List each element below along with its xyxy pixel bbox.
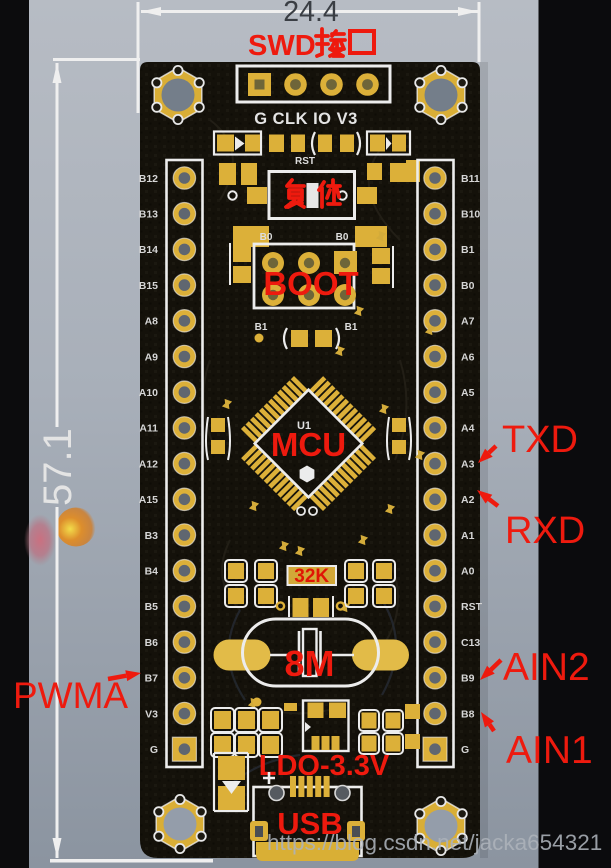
svg-text:B9: B9 bbox=[461, 673, 475, 685]
svg-text:A15: A15 bbox=[139, 494, 158, 506]
svg-text:A11: A11 bbox=[139, 423, 158, 435]
svg-text:57.1: 57.1 bbox=[36, 428, 80, 506]
svg-text:B1: B1 bbox=[461, 244, 475, 256]
svg-text:B14: B14 bbox=[139, 244, 158, 256]
svg-text:MCU: MCU bbox=[271, 426, 346, 463]
svg-text:RST: RST bbox=[461, 601, 483, 613]
svg-text:https://blog.csdn.net/jacka654: https://blog.csdn.net/jacka654321 bbox=[267, 830, 602, 855]
svg-text:A2: A2 bbox=[461, 494, 475, 506]
svg-text:32K: 32K bbox=[294, 566, 329, 587]
svg-text:V3: V3 bbox=[145, 708, 158, 720]
svg-text:A6: A6 bbox=[461, 351, 475, 363]
svg-text:BOOT: BOOT bbox=[263, 265, 358, 302]
svg-text:B1: B1 bbox=[345, 322, 358, 333]
svg-text:A3: A3 bbox=[461, 458, 475, 470]
svg-text:A0: A0 bbox=[461, 566, 475, 578]
svg-text:8M: 8M bbox=[284, 643, 334, 684]
svg-text:B6: B6 bbox=[145, 637, 159, 649]
svg-text:G CLK IO V3: G CLK IO V3 bbox=[254, 110, 358, 128]
svg-text:B7: B7 bbox=[145, 673, 159, 685]
svg-text:PWMA: PWMA bbox=[13, 675, 128, 716]
svg-text:A8: A8 bbox=[145, 316, 159, 328]
svg-text:A12: A12 bbox=[139, 458, 158, 470]
svg-text:TXD: TXD bbox=[502, 419, 578, 461]
svg-text:B3: B3 bbox=[145, 530, 159, 542]
svg-text:AIN1: AIN1 bbox=[506, 729, 593, 772]
svg-text:B0: B0 bbox=[336, 232, 349, 243]
svg-text:B0: B0 bbox=[461, 280, 475, 292]
svg-text:B11: B11 bbox=[461, 173, 480, 185]
svg-text:C13: C13 bbox=[461, 637, 480, 649]
svg-text:B15: B15 bbox=[139, 280, 158, 292]
svg-text:RXD: RXD bbox=[505, 510, 585, 552]
svg-text:RST: RST bbox=[295, 156, 315, 167]
svg-text:A1: A1 bbox=[461, 530, 475, 542]
svg-text:A4: A4 bbox=[461, 423, 475, 435]
svg-text:A5: A5 bbox=[461, 387, 475, 399]
svg-text:G: G bbox=[461, 744, 469, 756]
svg-text:B10: B10 bbox=[461, 209, 480, 221]
svg-text:G: G bbox=[150, 744, 158, 756]
svg-text:B4: B4 bbox=[145, 566, 159, 578]
svg-text:SWD: SWD bbox=[248, 30, 316, 62]
svg-text:A9: A9 bbox=[145, 351, 159, 363]
svg-text:AIN2: AIN2 bbox=[503, 646, 590, 689]
svg-text:A10: A10 bbox=[139, 387, 158, 399]
svg-text:B1: B1 bbox=[255, 322, 268, 333]
svg-text:24.4: 24.4 bbox=[283, 0, 339, 28]
svg-text:B13: B13 bbox=[139, 209, 158, 221]
svg-text:B0: B0 bbox=[260, 232, 273, 243]
svg-text:B8: B8 bbox=[461, 708, 475, 720]
svg-text:B5: B5 bbox=[145, 601, 159, 613]
svg-text:B12: B12 bbox=[139, 173, 158, 185]
svg-text:A7: A7 bbox=[461, 316, 475, 328]
